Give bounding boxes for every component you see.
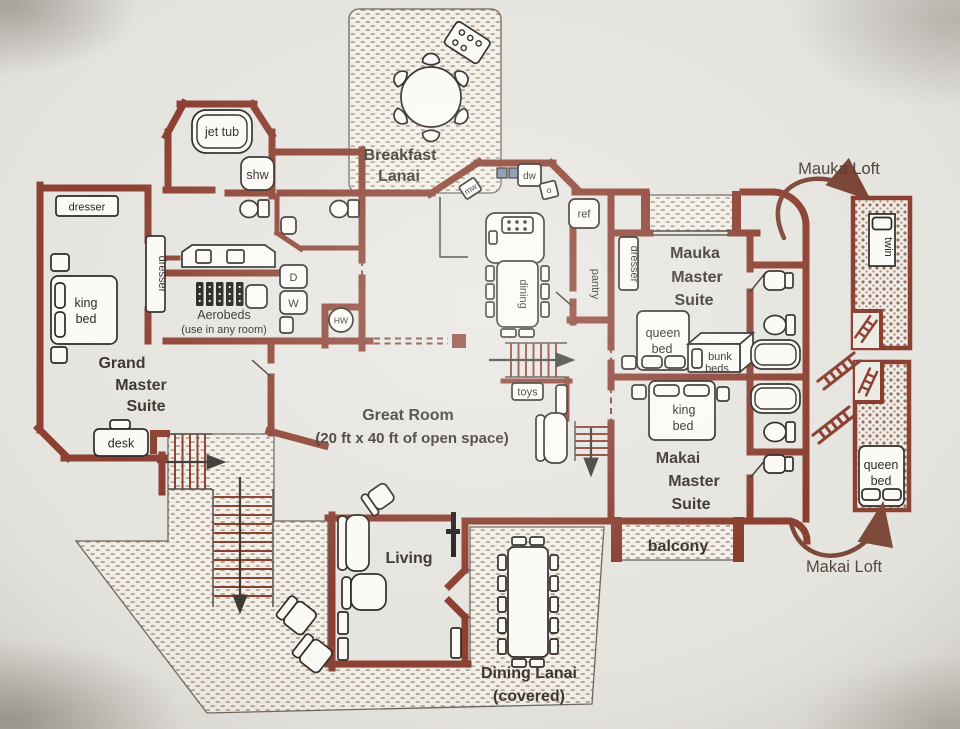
floor-plan-svg: twin queen bed Mauka Loft Makai Loft (0, 0, 960, 729)
floor-plan-photo: twin queen bed Mauka Loft Makai Loft (0, 0, 960, 729)
photo-vignette (0, 0, 960, 729)
